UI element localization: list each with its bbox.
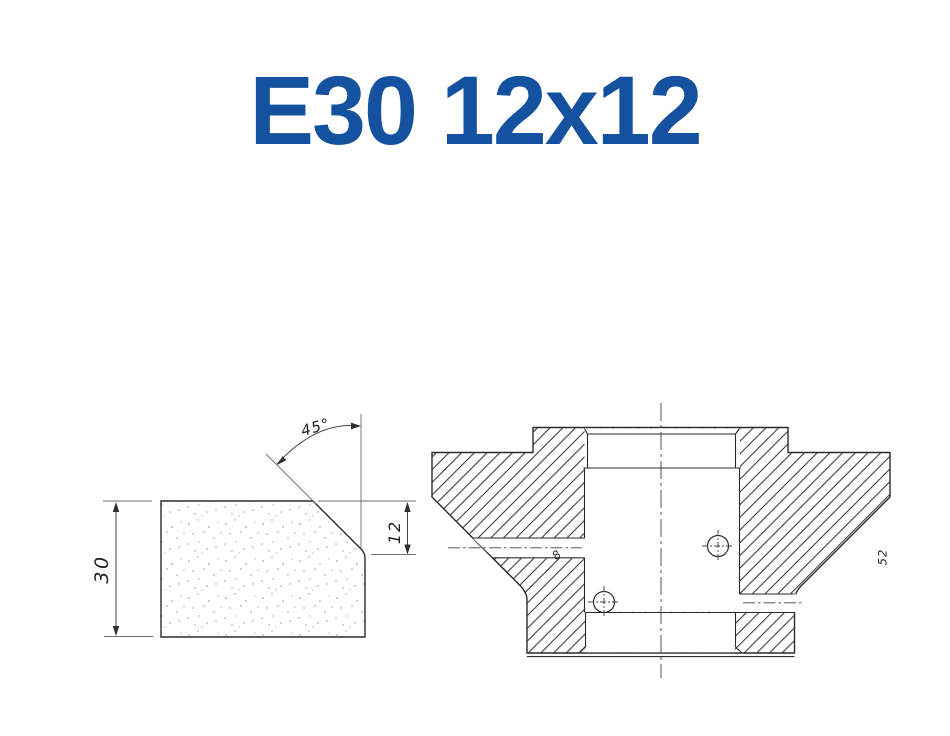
dim-chamfer-depth-label: 12 xyxy=(385,520,404,544)
bottom-recess-cutout xyxy=(586,613,735,653)
dim-chamfer-angle-label: 45° xyxy=(299,414,332,439)
dim-height-label: 30 xyxy=(91,554,113,583)
profile-view: 30 12 45° xyxy=(91,414,416,637)
dim-height: 30 xyxy=(91,501,153,637)
section-view: 8 52 xyxy=(432,403,890,678)
dim-arrow xyxy=(404,545,410,555)
right-dim-label: 52 xyxy=(876,549,890,566)
technical-drawing: 30 12 45° xyxy=(0,0,950,736)
dim-arrow xyxy=(277,456,286,465)
angle-extension-line xyxy=(266,454,316,504)
profile-outline xyxy=(161,501,365,637)
dim-arrow xyxy=(113,502,119,512)
dim-arrow xyxy=(351,423,361,430)
dim-arrow xyxy=(404,502,410,512)
dim-arrow xyxy=(113,626,119,636)
bore-cutout xyxy=(585,428,741,611)
